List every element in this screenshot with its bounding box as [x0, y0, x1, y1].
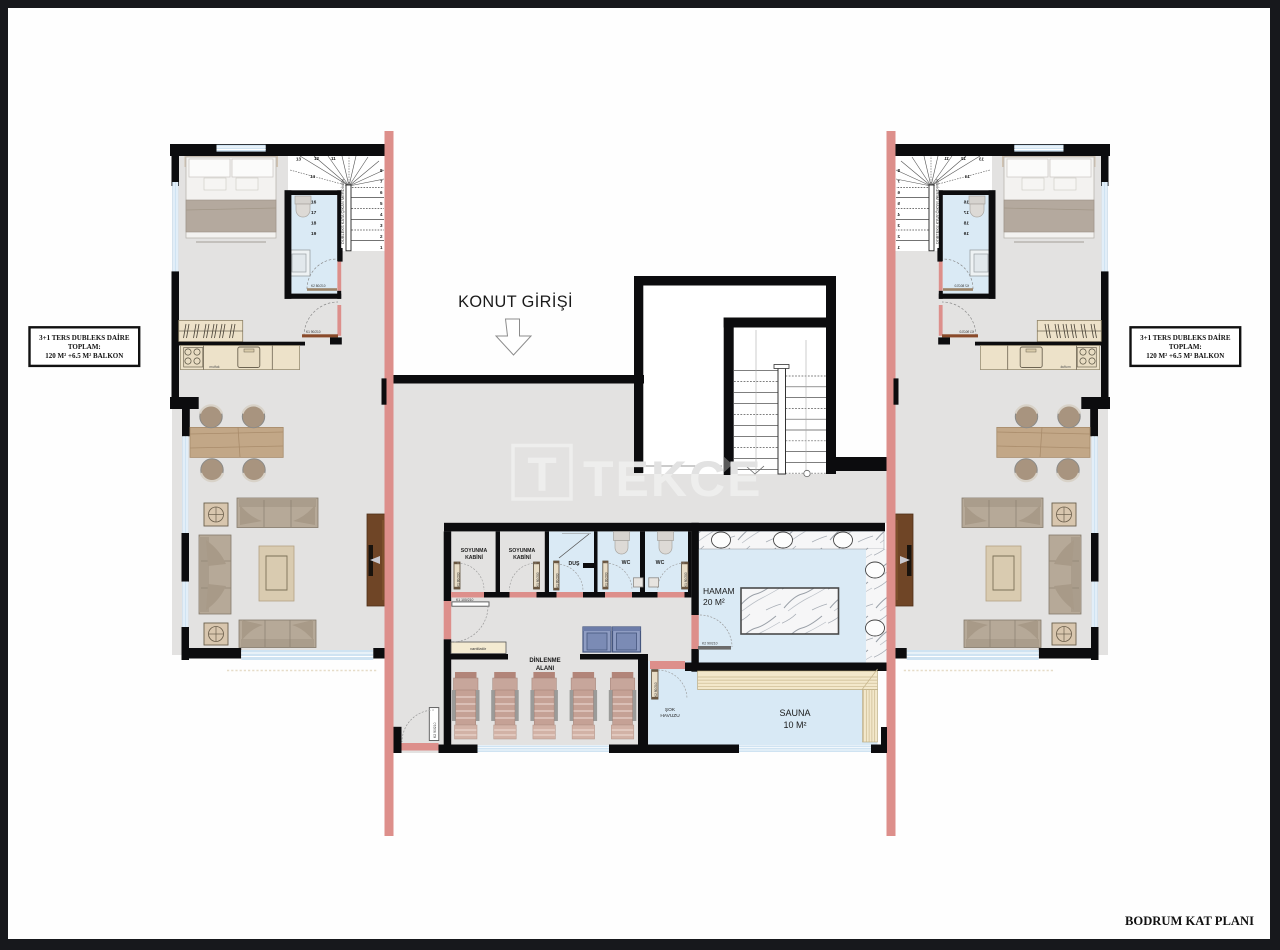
- svg-text:HAVUZU: HAVUZU: [660, 713, 680, 719]
- svg-text:K1 80/200: K1 80/200: [684, 572, 688, 587]
- svg-text:K1 100/210: K1 100/210: [456, 598, 473, 602]
- svg-text:K1 80/200: K1 80/200: [536, 572, 540, 587]
- svg-text:K1 90/210: K1 90/210: [306, 330, 321, 334]
- svg-text:120 M² +6.5 M² BALKON: 120 M² +6.5 M² BALKON: [1146, 352, 1224, 360]
- svg-text:13: 13: [296, 157, 302, 162]
- svg-text:3+1 TERS DUBLEKS DAİRE: 3+1 TERS DUBLEKS DAİRE: [39, 334, 130, 342]
- svg-text:19: 19: [311, 231, 317, 237]
- svg-text:DİNLENME: DİNLENME: [529, 657, 560, 664]
- svg-text:11: 11: [331, 156, 336, 161]
- svg-text:SOYUNMA: SOYUNMA: [509, 548, 536, 554]
- svg-text:SOYUNMA: SOYUNMA: [461, 548, 488, 554]
- svg-text:TOPLAM:: TOPLAM:: [68, 343, 101, 351]
- svg-text:vantilatör: vantilatör: [470, 646, 487, 651]
- svg-text:KABİNİ: KABİNİ: [513, 554, 531, 561]
- svg-text:3+1 TERS DUBLEKS DAİRE: 3+1 TERS DUBLEKS DAİRE: [1140, 334, 1231, 342]
- svg-text:K2 80/210: K2 80/210: [311, 284, 326, 288]
- svg-text:BODRUM KAT PLANI: BODRUM KAT PLANI: [1125, 914, 1254, 928]
- svg-text:WC: WC: [622, 560, 631, 566]
- svg-text:16: 16: [311, 200, 317, 206]
- svg-text:DUŞ: DUŞ: [569, 561, 580, 567]
- svg-text:14: 14: [310, 174, 316, 179]
- svg-text:12: 12: [314, 156, 320, 161]
- svg-text:K1 80/200: K1 80/200: [457, 572, 461, 587]
- svg-text:T: T: [527, 449, 556, 502]
- svg-text:KONUT GİRİŞİ: KONUT GİRİŞİ: [458, 292, 573, 311]
- svg-text:ŞOK: ŞOK: [665, 707, 676, 713]
- svg-text:120 M² +6.5 M² BALKON: 120 M² +6.5 M² BALKON: [45, 352, 123, 360]
- svg-text:DUBLEKS KATA ÇIKAN MERDİVEN: DUBLEKS KATA ÇIKAN MERDİVEN: [340, 179, 345, 244]
- svg-text:WC: WC: [656, 560, 665, 566]
- svg-text:K2 80/210: K2 80/210: [654, 682, 658, 697]
- svg-text:HAMAM: HAMAM: [703, 586, 735, 596]
- svg-text:K1 80/200: K1 80/200: [605, 572, 609, 587]
- svg-text:20 M²: 20 M²: [703, 597, 725, 607]
- svg-text:TOPLAM:: TOPLAM:: [1169, 343, 1202, 351]
- svg-text:mutfak: mutfak: [209, 365, 219, 369]
- svg-text:SAUNA: SAUNA: [779, 708, 810, 718]
- svg-text:18: 18: [311, 221, 317, 227]
- svg-text:KABİNİ: KABİNİ: [465, 554, 483, 561]
- svg-text:K2 90/210: K2 90/210: [702, 642, 718, 646]
- svg-text:ALANI: ALANI: [536, 666, 555, 672]
- svg-text:K1 80/200: K1 80/200: [556, 573, 560, 588]
- svg-text:K2 90/210: K2 90/210: [433, 722, 437, 738]
- svg-text:17: 17: [311, 210, 317, 216]
- svg-text:10 M²: 10 M²: [783, 720, 806, 730]
